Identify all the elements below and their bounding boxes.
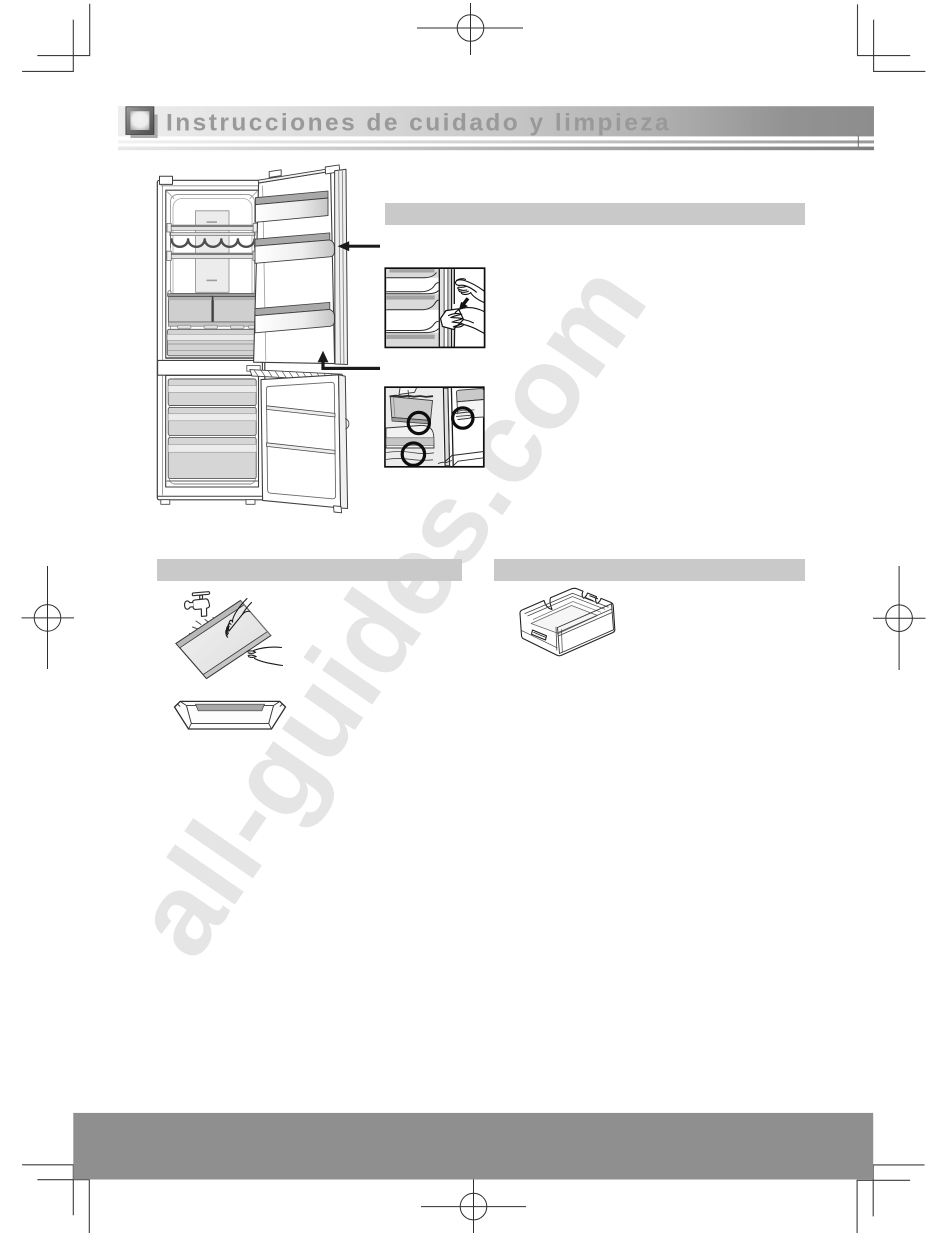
- svg-text:Instrucciones de cuidado y lim: Instrucciones de cuidado y limpieza: [166, 110, 671, 137]
